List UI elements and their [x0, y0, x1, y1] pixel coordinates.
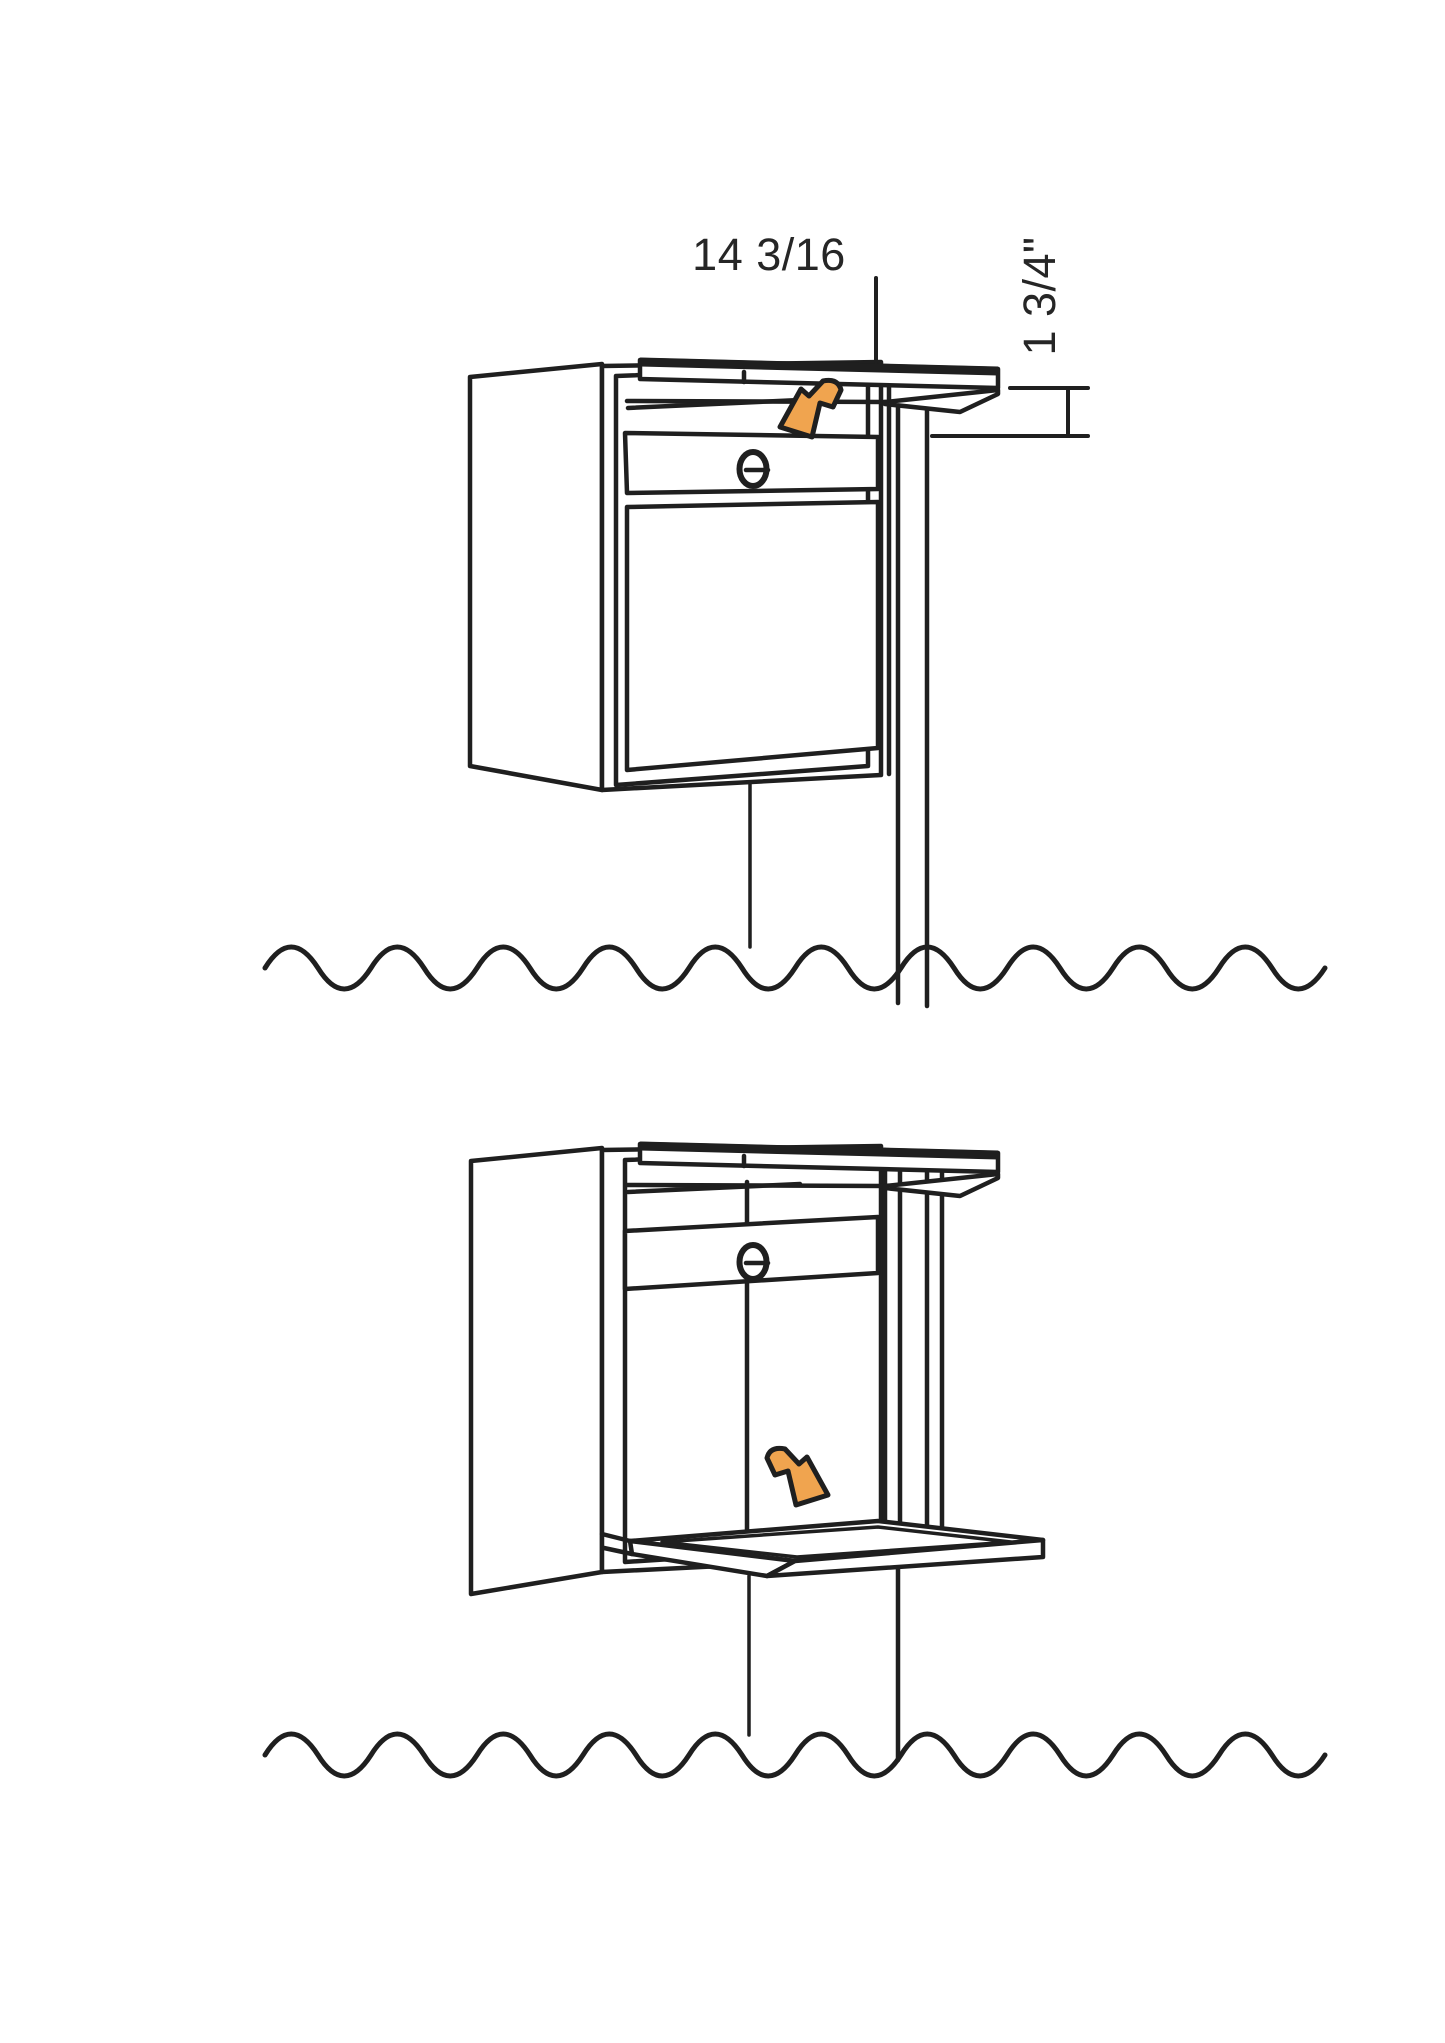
- figure-mailbox-closed: 14 3/16 1 3/4": [265, 229, 1325, 1006]
- mounting-post: [749, 1566, 898, 1760]
- mailbox-front-frame-outer: [602, 1146, 881, 1572]
- mailbox-left-panel: [471, 1148, 602, 1594]
- ground-wave: [265, 1734, 1325, 1776]
- width-dimension-label: 14 3/16: [692, 229, 846, 280]
- mailbox-left-panel: [470, 364, 602, 790]
- width-dimension: 14 3/16: [692, 229, 876, 362]
- gap-dimension-label: 1 3/4": [1014, 236, 1065, 355]
- figure-mailbox-open: [265, 1144, 1325, 1776]
- instruction-diagram: 14 3/16 1 3/4": [0, 0, 1445, 2043]
- door-panel: [627, 502, 878, 770]
- ground-wave: [265, 947, 1325, 989]
- lock-icon: [740, 452, 769, 486]
- lock-icon: [740, 1245, 769, 1279]
